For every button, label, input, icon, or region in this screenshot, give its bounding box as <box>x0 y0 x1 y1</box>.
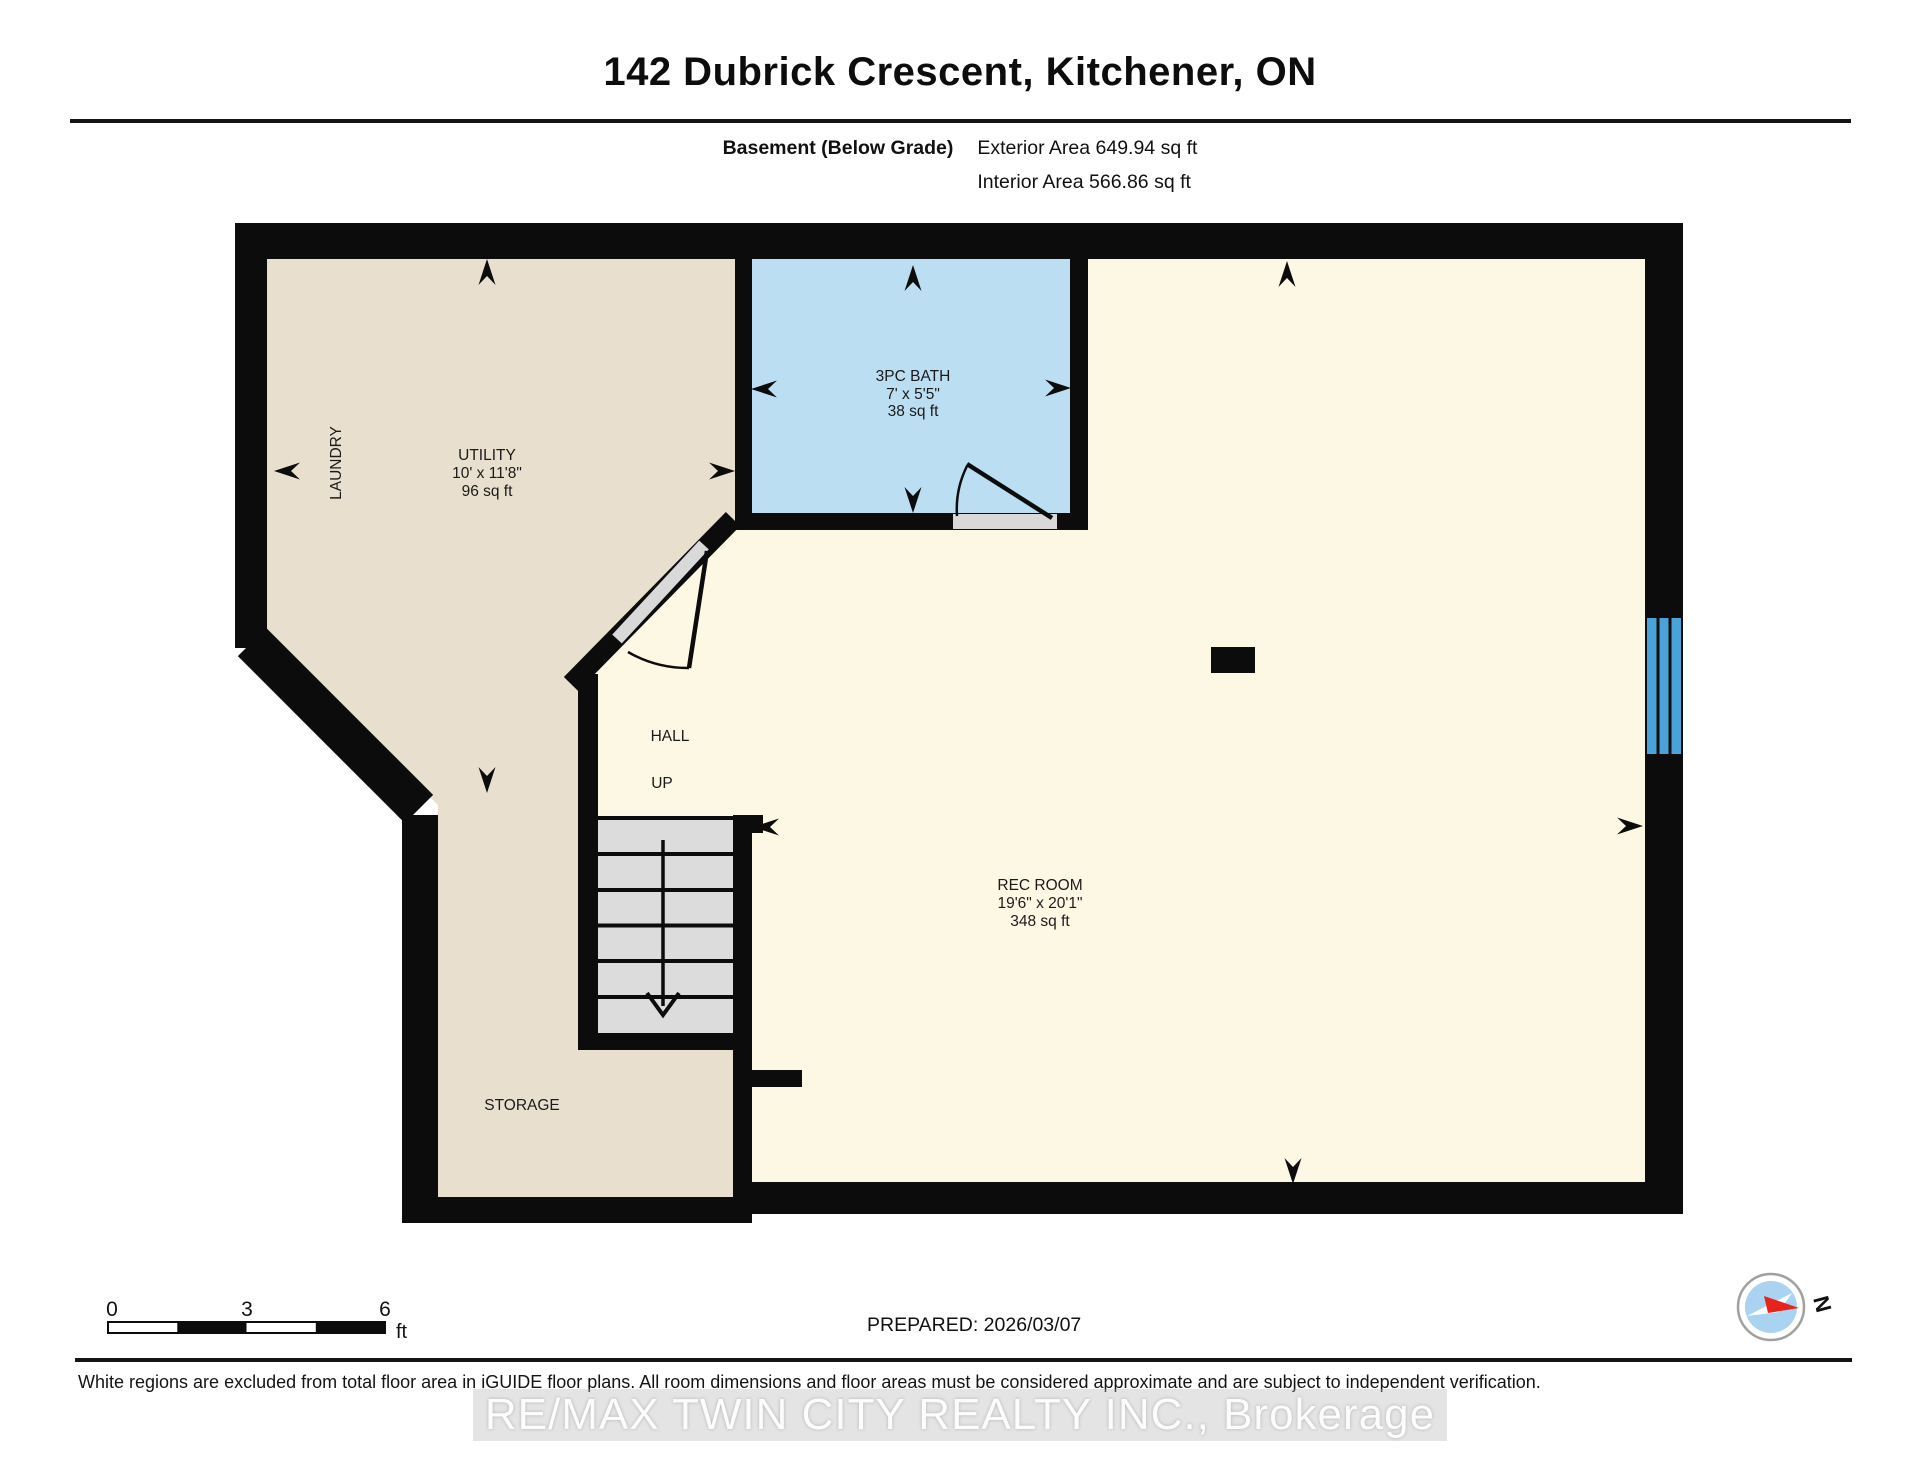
scale-bar-segment <box>316 1322 385 1333</box>
floor-plan-canvas: UTILITY 10' x 11'8" 96 sq ft LAUNDRY 3PC… <box>0 0 1920 1484</box>
rec-room-area: 348 sq ft <box>1010 913 1070 930</box>
bath-door-threshold <box>953 514 1057 529</box>
compass-north-label: N <box>1808 1293 1836 1315</box>
watermark-row: RE/MAX TWIN CITY REALTY INC., Brokerage <box>0 1389 1920 1441</box>
wall-stair-bottom <box>578 1033 752 1050</box>
utility-area: 96 sq ft <box>462 483 514 500</box>
wall-stair-left <box>578 674 598 1050</box>
wall-bath-right <box>1070 259 1088 530</box>
footer-divider <box>75 1358 1852 1362</box>
prepared-date: PREPARED: 2026/03/07 <box>867 1314 1081 1336</box>
laundry-label: LAUNDRY <box>328 426 345 500</box>
scale-tick-6: 6 <box>379 1298 391 1321</box>
wall-stair-top-stub <box>733 815 763 833</box>
utility-dims: 10' x 11'8" <box>452 465 522 482</box>
wall-stair-right <box>733 815 752 1214</box>
wall-storage-bottom <box>402 1197 752 1223</box>
brokerage-watermark: RE/MAX TWIN CITY REALTY INC., Brokerage <box>473 1389 1447 1441</box>
structural-post <box>1211 647 1255 673</box>
hall-label: HALL <box>651 728 690 745</box>
room-fills <box>267 259 1645 1197</box>
floor-plan-page: 142 Dubrick Crescent, Kitchener, ON Base… <box>0 0 1920 1484</box>
compass: N <box>1738 1274 1836 1340</box>
wall-left-lower <box>402 815 438 1223</box>
storage-label: STORAGE <box>484 1097 560 1114</box>
window-glass <box>1646 617 1682 755</box>
rec-room-dims: 19'6" x 20'1" <box>997 895 1082 912</box>
bath-dims: 7' x 5'5" <box>886 386 940 403</box>
window <box>1646 617 1682 755</box>
scale-bar-segment <box>177 1322 246 1333</box>
wall-bath-left <box>735 259 752 530</box>
scale-tick-0: 0 <box>106 1298 118 1321</box>
scale-unit-label: ft <box>396 1321 408 1343</box>
wall-top <box>235 223 1683 259</box>
bath-label: 3PC BATH <box>876 368 951 385</box>
stairs-up-label: UP <box>651 775 673 792</box>
bath-area: 38 sq ft <box>888 403 940 420</box>
wall-rec-bottom <box>752 1182 1683 1214</box>
wall-lower-stub <box>750 1070 802 1087</box>
utility-label: UTILITY <box>458 447 516 464</box>
staircase <box>598 816 733 1034</box>
scale-bar: 0 3 6 ft <box>106 1298 407 1343</box>
wall-left-upper <box>235 223 267 648</box>
scale-tick-3: 3 <box>241 1298 253 1321</box>
rec-room-label: REC ROOM <box>997 877 1082 894</box>
